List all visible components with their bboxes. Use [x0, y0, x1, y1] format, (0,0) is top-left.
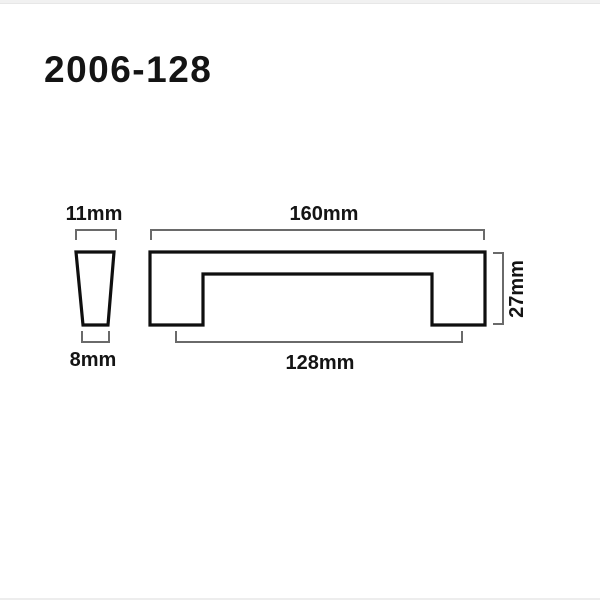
front-height-dim-bracket — [493, 252, 504, 325]
product-dimension-drawing: 2006-128 11mm 8mm 160mm 27mm 128mm — [0, 0, 600, 600]
front-width-label: 160mm — [224, 203, 424, 225]
page-top-edge-strip — [0, 0, 600, 4]
side-top-dim-bracket — [75, 229, 117, 240]
front-hole-centers-label: 128mm — [220, 352, 420, 374]
handle-front-shape — [146, 246, 489, 330]
product-code-title: 2006-128 — [44, 50, 212, 90]
side-top-width-label: 11mm — [44, 203, 144, 225]
front-height-label: 27mm — [506, 239, 528, 339]
side-bottom-width-label: 8mm — [43, 349, 143, 371]
side-bottom-dim-bracket — [81, 331, 110, 343]
front-width-dim-bracket — [150, 229, 485, 240]
side-profile-shape — [70, 246, 120, 330]
front-hole-centers-dim-bracket — [175, 331, 463, 343]
